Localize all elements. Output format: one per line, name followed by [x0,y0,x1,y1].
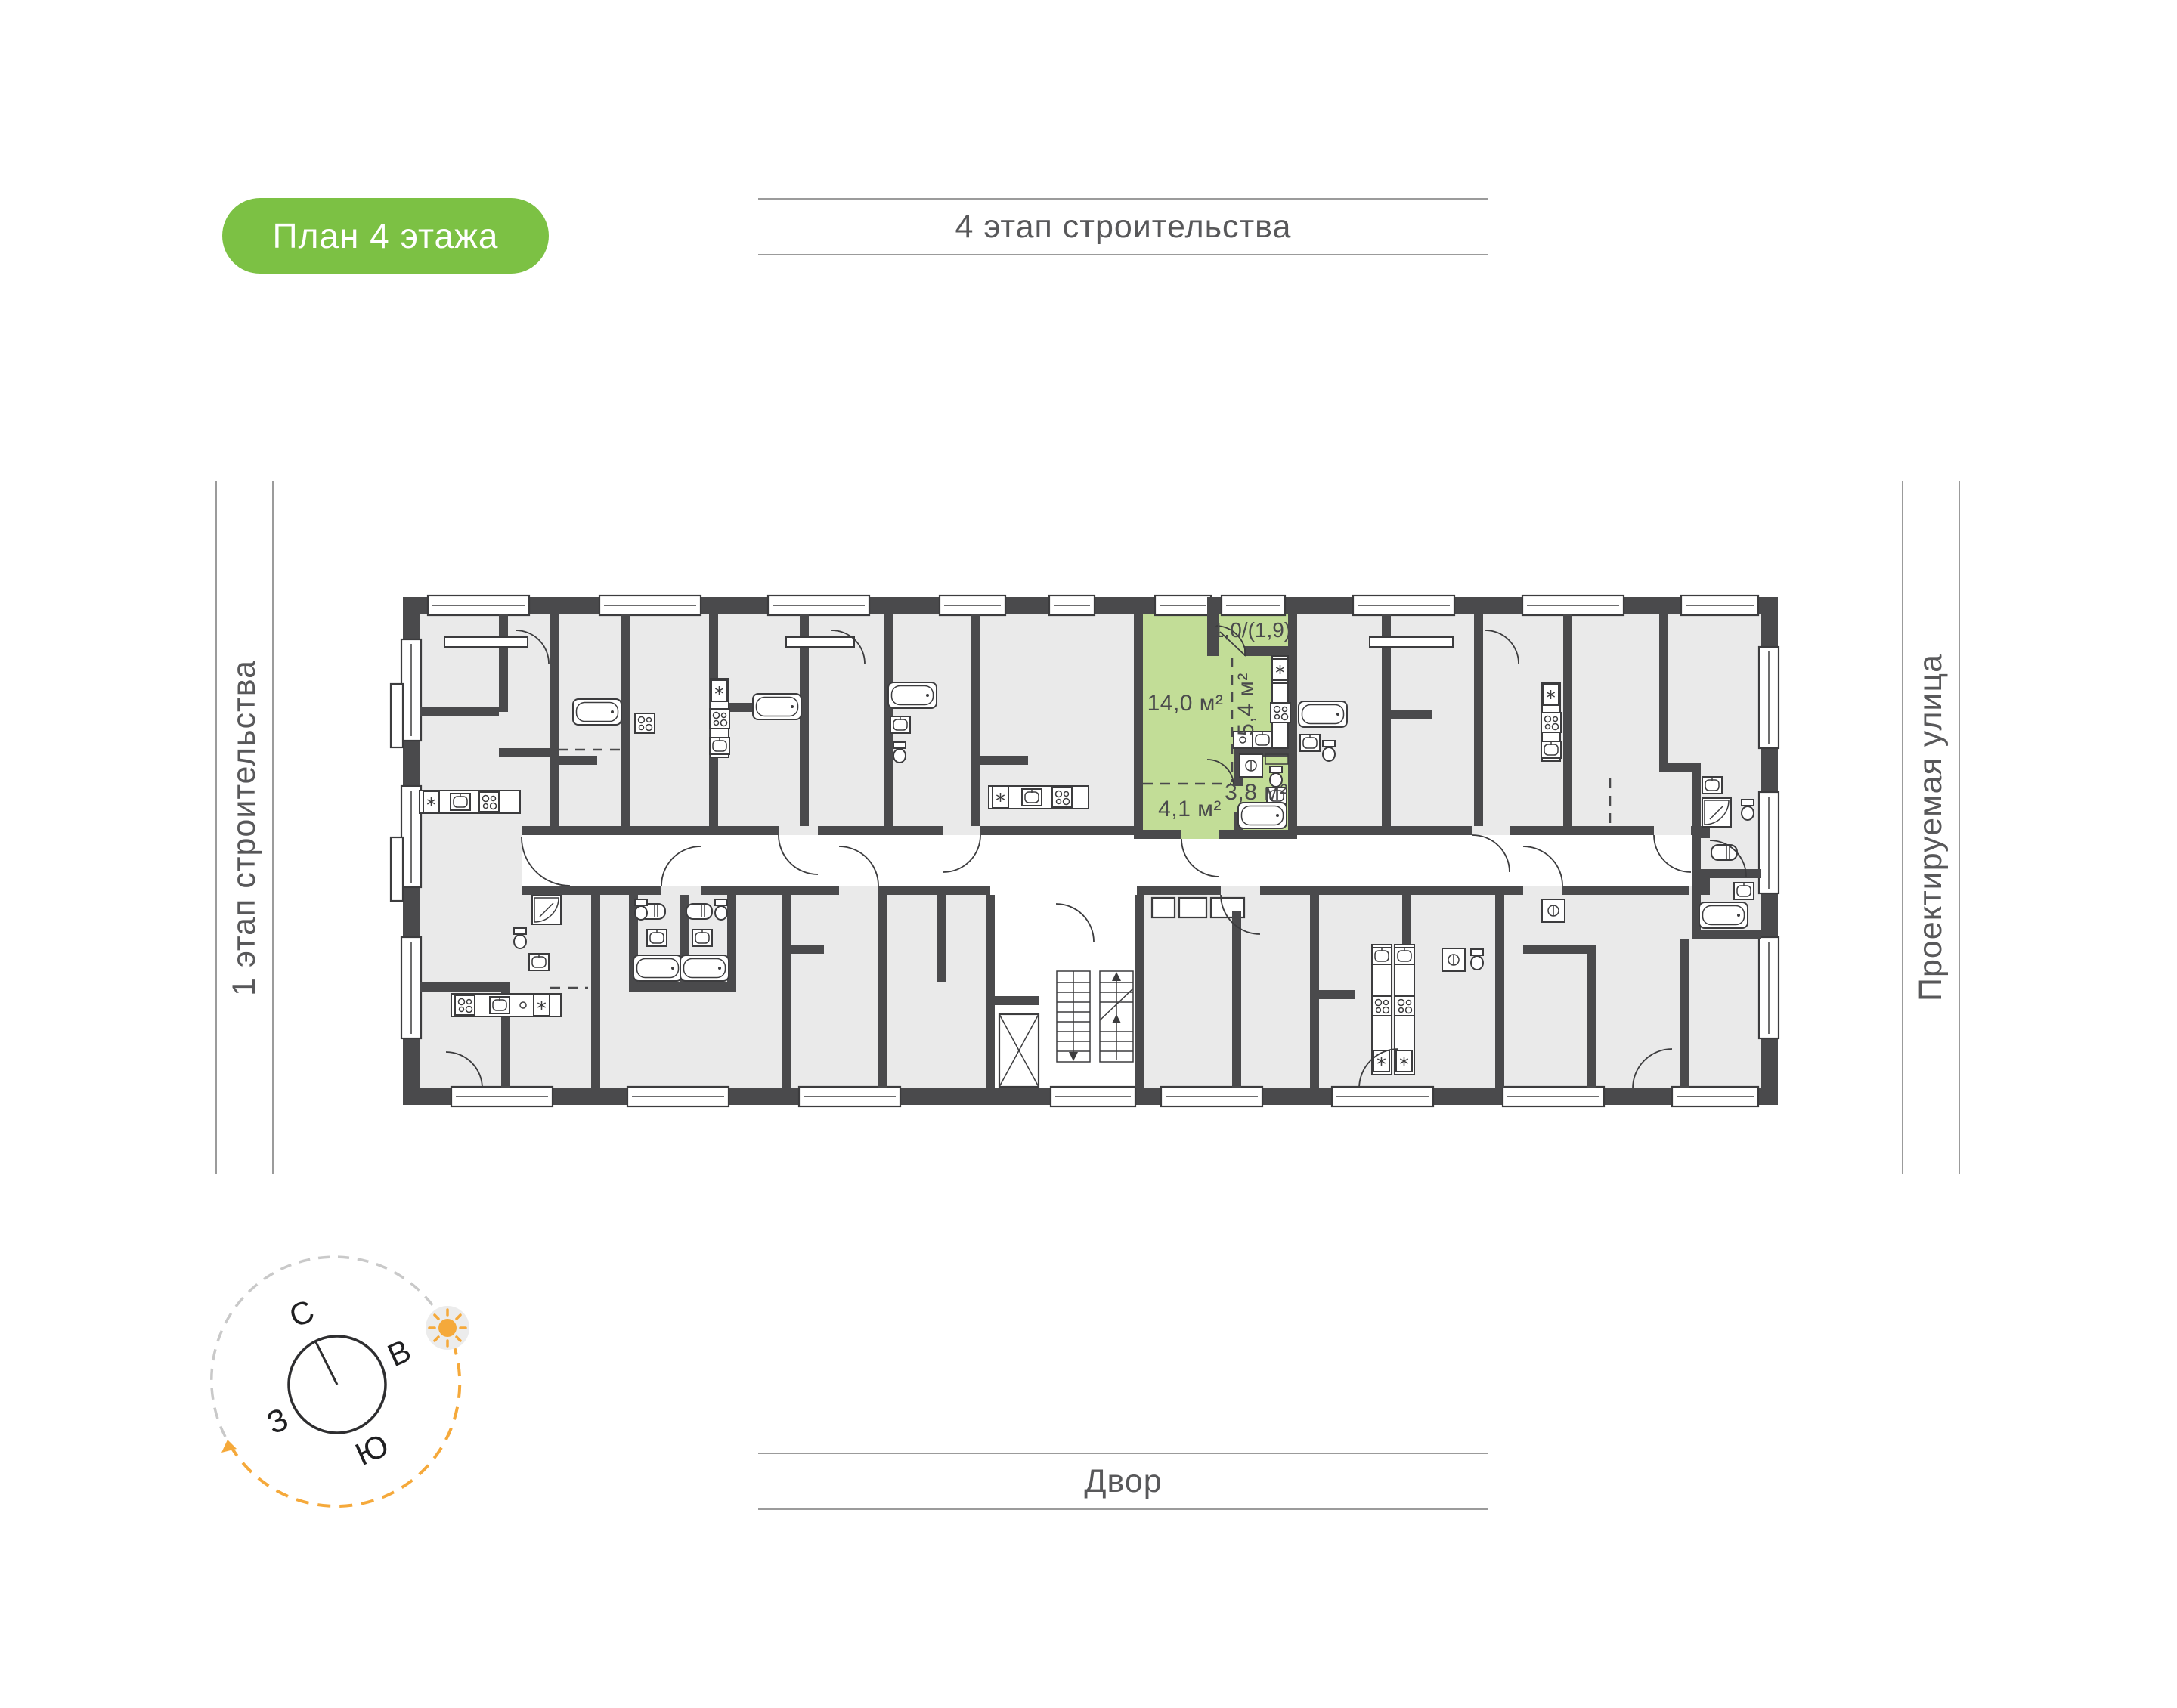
balcony-area-label: 1,0/(1,9) [1212,618,1291,642]
construction-stage-4-text: 4 этап строительства [955,209,1292,246]
construction-stage-1-text: 1 этап строительства [226,660,263,996]
compass: С В З Ю [212,1257,469,1506]
bathroom-area-label: 3,8 м² [1225,780,1288,805]
west-label: З [262,1400,293,1440]
hallway-area-label: 4,1 м² [1158,797,1222,822]
south-label: Ю [350,1427,394,1472]
corridor [522,835,1701,886]
sun-icon [426,1306,469,1350]
courtyard-label: Двор [758,1453,1488,1510]
north-label: С [284,1292,320,1334]
projected-street-label: Проектируемая улица [1902,481,1960,1174]
living-room-area-label: 14,0 м² [1147,691,1224,716]
east-label: В [382,1332,417,1373]
construction-stage-4-label: 4 этап строительства [758,198,1488,255]
elevator-icon [999,1014,1039,1087]
kitchen-area-label: 5,4 м² [1234,673,1259,736]
courtyard-text: Двор [1084,1463,1162,1500]
projected-street-text: Проектируемая улица [1912,654,1949,1001]
building: 14,0 м² 5,4 м² 3,8 м² 4,1 м² 1,0/(1,9) [391,596,1779,1106]
construction-stage-1-label: 1 этап строительства [215,481,274,1174]
floor-plan-badge[interactable]: План 4 этажа [222,198,549,274]
